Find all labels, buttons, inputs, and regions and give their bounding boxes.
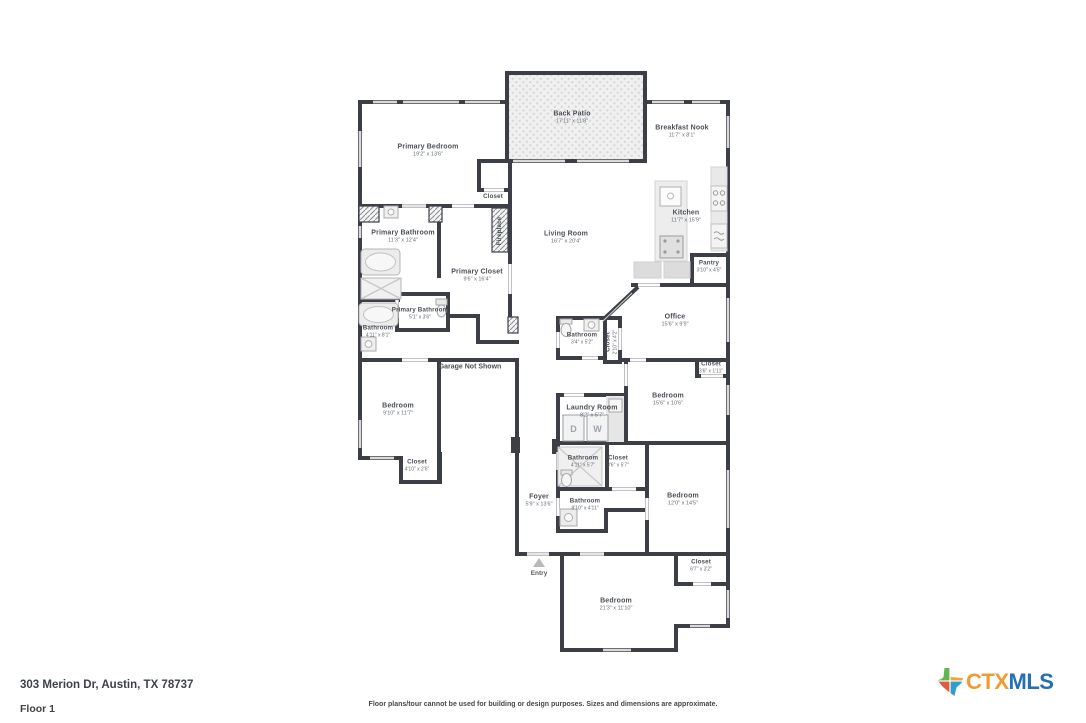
sink-icon xyxy=(361,337,376,351)
entry-label: Entry xyxy=(531,570,548,577)
toilet-icon xyxy=(560,319,572,337)
bathtub-icon xyxy=(361,249,400,275)
sink-icon xyxy=(560,509,577,526)
kitchen-island xyxy=(655,181,687,261)
svg-text:D: D xyxy=(570,424,577,434)
property-address: 303 Merion Dr, Austin, TX 78737 xyxy=(20,679,193,691)
fireplace-hatch xyxy=(492,208,508,252)
toilet-icon xyxy=(436,299,447,317)
logo-mls-text: MLS xyxy=(1009,669,1054,694)
sink-icon xyxy=(609,399,622,412)
ctxmls-logo: CTXMLS xyxy=(936,667,1053,697)
entry-arrow-icon xyxy=(533,558,545,567)
logo-wordmark: CTXMLS xyxy=(966,671,1053,693)
sink-icon xyxy=(384,206,398,218)
sink-icon xyxy=(584,319,599,331)
floor-plan-page: D W xyxy=(0,0,1086,723)
range-icon xyxy=(660,236,683,258)
floor-number-label: Floor 1 xyxy=(20,703,55,715)
dryer-icon: D xyxy=(563,415,584,441)
shower-icon xyxy=(361,278,401,299)
bathtub-icon xyxy=(359,303,398,326)
disclaimer-text: Floor plans/tour cannot be used for buil… xyxy=(369,701,718,708)
garage-not-shown-note: Garage Not Shown xyxy=(439,364,502,371)
toilet-icon xyxy=(561,470,572,487)
appliance-icon xyxy=(711,224,727,248)
logo-ctx-text: CTX xyxy=(966,669,1009,694)
floor-plan-drawing: D W xyxy=(0,0,1086,723)
sink-icon xyxy=(660,187,681,206)
garage-door-frame xyxy=(511,437,520,453)
back-patio-deck xyxy=(509,75,643,159)
cooktop-icon xyxy=(711,186,727,211)
kitchen-lower-counters xyxy=(634,262,690,278)
texas-icon xyxy=(936,667,964,697)
washer-icon: W xyxy=(587,415,608,441)
kitchen-counter xyxy=(711,167,727,251)
laundry-counter xyxy=(606,396,624,442)
svg-text:W: W xyxy=(593,424,602,434)
fixtures: D W xyxy=(359,167,727,567)
